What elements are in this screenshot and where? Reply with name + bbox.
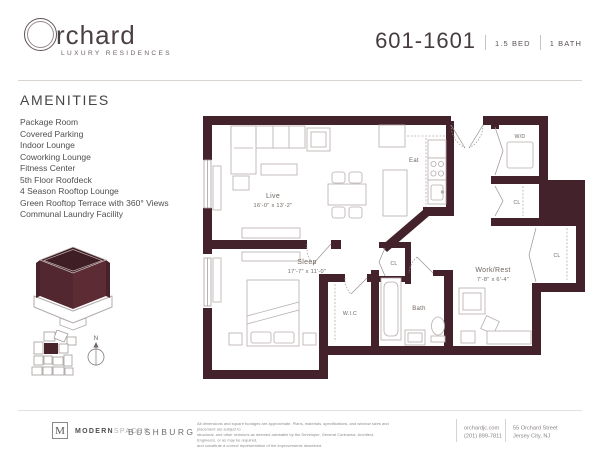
site-key-plan: N: [30, 330, 115, 398]
washer-dryer-unit: [507, 142, 533, 168]
kitchen-island: [383, 170, 407, 216]
room-label-eat: Eat: [409, 158, 419, 164]
ptac-unit: [213, 166, 221, 210]
website: orchardjc.com: [464, 424, 502, 432]
amenity-item: 5th Floor Roofdeck: [20, 175, 169, 187]
amenity-item: Green Rooftop Terrace with 360° Views: [20, 198, 169, 210]
building-illustration: [26, 240, 122, 336]
refrigerator: [379, 125, 405, 147]
floor-plan: Live 16'-0" x 13'-2" Eat Sleep 17'-7" x …: [195, 112, 590, 389]
dresser: [242, 252, 300, 261]
amenities-list: Package Room Covered Parking Indoor Loun…: [20, 117, 169, 221]
footer-rule: [18, 410, 582, 411]
stove: [428, 158, 446, 180]
nightstand: [303, 333, 316, 345]
pillow: [251, 332, 271, 343]
divider: [540, 35, 541, 50]
amenity-item: Indoor Lounge: [20, 140, 169, 152]
room-label-work-rest: Work/Rest: [475, 267, 510, 274]
unit-number: 601-1601: [375, 28, 476, 54]
kitchen: [379, 125, 446, 216]
floor-plan-furniture: [213, 125, 567, 346]
toilet: [432, 317, 445, 335]
divider: [485, 35, 486, 50]
footer-divider: [456, 419, 457, 442]
amenity-item: Fitness Center: [20, 163, 169, 175]
amenity-item: Communal Laundry Facility: [20, 209, 169, 221]
header-rule: [18, 80, 582, 81]
nightstand: [229, 333, 242, 345]
room-label-cl: CL: [391, 261, 398, 267]
room-label-wd: W/D: [515, 134, 526, 140]
coffee-table: [261, 164, 297, 175]
bushburg-logo: BUSHBURG: [128, 427, 195, 437]
room-label-cl: CL: [554, 253, 561, 259]
unit-beds: 1.5 BED: [495, 39, 531, 48]
room-label-sleep: Sleep: [297, 259, 316, 266]
unit-baths: 1 BATH: [550, 39, 582, 48]
room-dims-sleep: 17'-7" x 11'-0": [288, 269, 327, 275]
disclaimer-line: and constitute a correct representation …: [197, 443, 393, 449]
contact-address: 55 Orchard Street Jersey City, NJ: [513, 424, 558, 439]
orchard-o-logo-icon: [24, 18, 57, 51]
svg-text:N: N: [94, 335, 99, 342]
room-dims-work-rest: 7'-8" x 6'-4": [477, 277, 509, 283]
compass-icon: N: [88, 335, 104, 365]
work-rest-furniture: [459, 288, 531, 344]
contact-web-phone: orchardjc.com (201) 899-7811: [464, 424, 502, 439]
toilet-tank: [431, 336, 445, 342]
sofa-sectional: [231, 126, 305, 190]
room-label-live: Live: [266, 193, 280, 200]
floorplan-flyer: rchard LUXURY RESIDENCES 601-1601 1.5 BE…: [0, 0, 600, 461]
highlighted-unit: [44, 343, 58, 354]
brand-name: rchard: [56, 20, 136, 51]
dining-set: [328, 172, 366, 218]
room-label-wic: W.I.C: [343, 311, 357, 317]
daybed: [487, 331, 531, 344]
brand-tagline: LUXURY RESIDENCES: [61, 50, 172, 57]
phone: (201) 899-7811: [464, 432, 502, 440]
room-label-cl: CL: [514, 200, 521, 206]
media-console: [242, 228, 300, 238]
footer-divider: [505, 419, 506, 442]
room-label-bath: Bath: [412, 306, 426, 312]
amenity-item: Covered Parking: [20, 129, 169, 141]
stool: [461, 331, 475, 343]
amenities-section: AMENITIES Package Room Covered Parking I…: [20, 92, 169, 221]
address-line: Jersey City, NJ: [513, 432, 558, 440]
modern-spaces-bold: MODERN: [75, 428, 114, 435]
ptac-unit: [213, 258, 221, 302]
modern-spaces-monogram: M: [52, 422, 68, 439]
amenity-item: 4 Season Rooftop Lounge: [20, 186, 169, 198]
room-dims-live: 16'-0" x 13'-2": [254, 203, 293, 209]
amenity-item: Coworking Lounge: [20, 152, 169, 164]
amenity-item: Package Room: [20, 117, 169, 129]
address-line: 55 Orchard Street: [513, 424, 558, 432]
pillow: [274, 332, 294, 343]
disclaimer-line: All dimensions and square footages are a…: [197, 421, 393, 432]
legal-disclaimer: All dimensions and square footages are a…: [197, 421, 393, 449]
disclaimer-line: structural, and other revisions as deeme…: [197, 432, 393, 443]
armchair-cushion: [311, 132, 326, 147]
unit-header: 601-1601 1.5 BED 1 BATH: [375, 28, 582, 54]
amenities-title: AMENITIES: [20, 92, 169, 108]
